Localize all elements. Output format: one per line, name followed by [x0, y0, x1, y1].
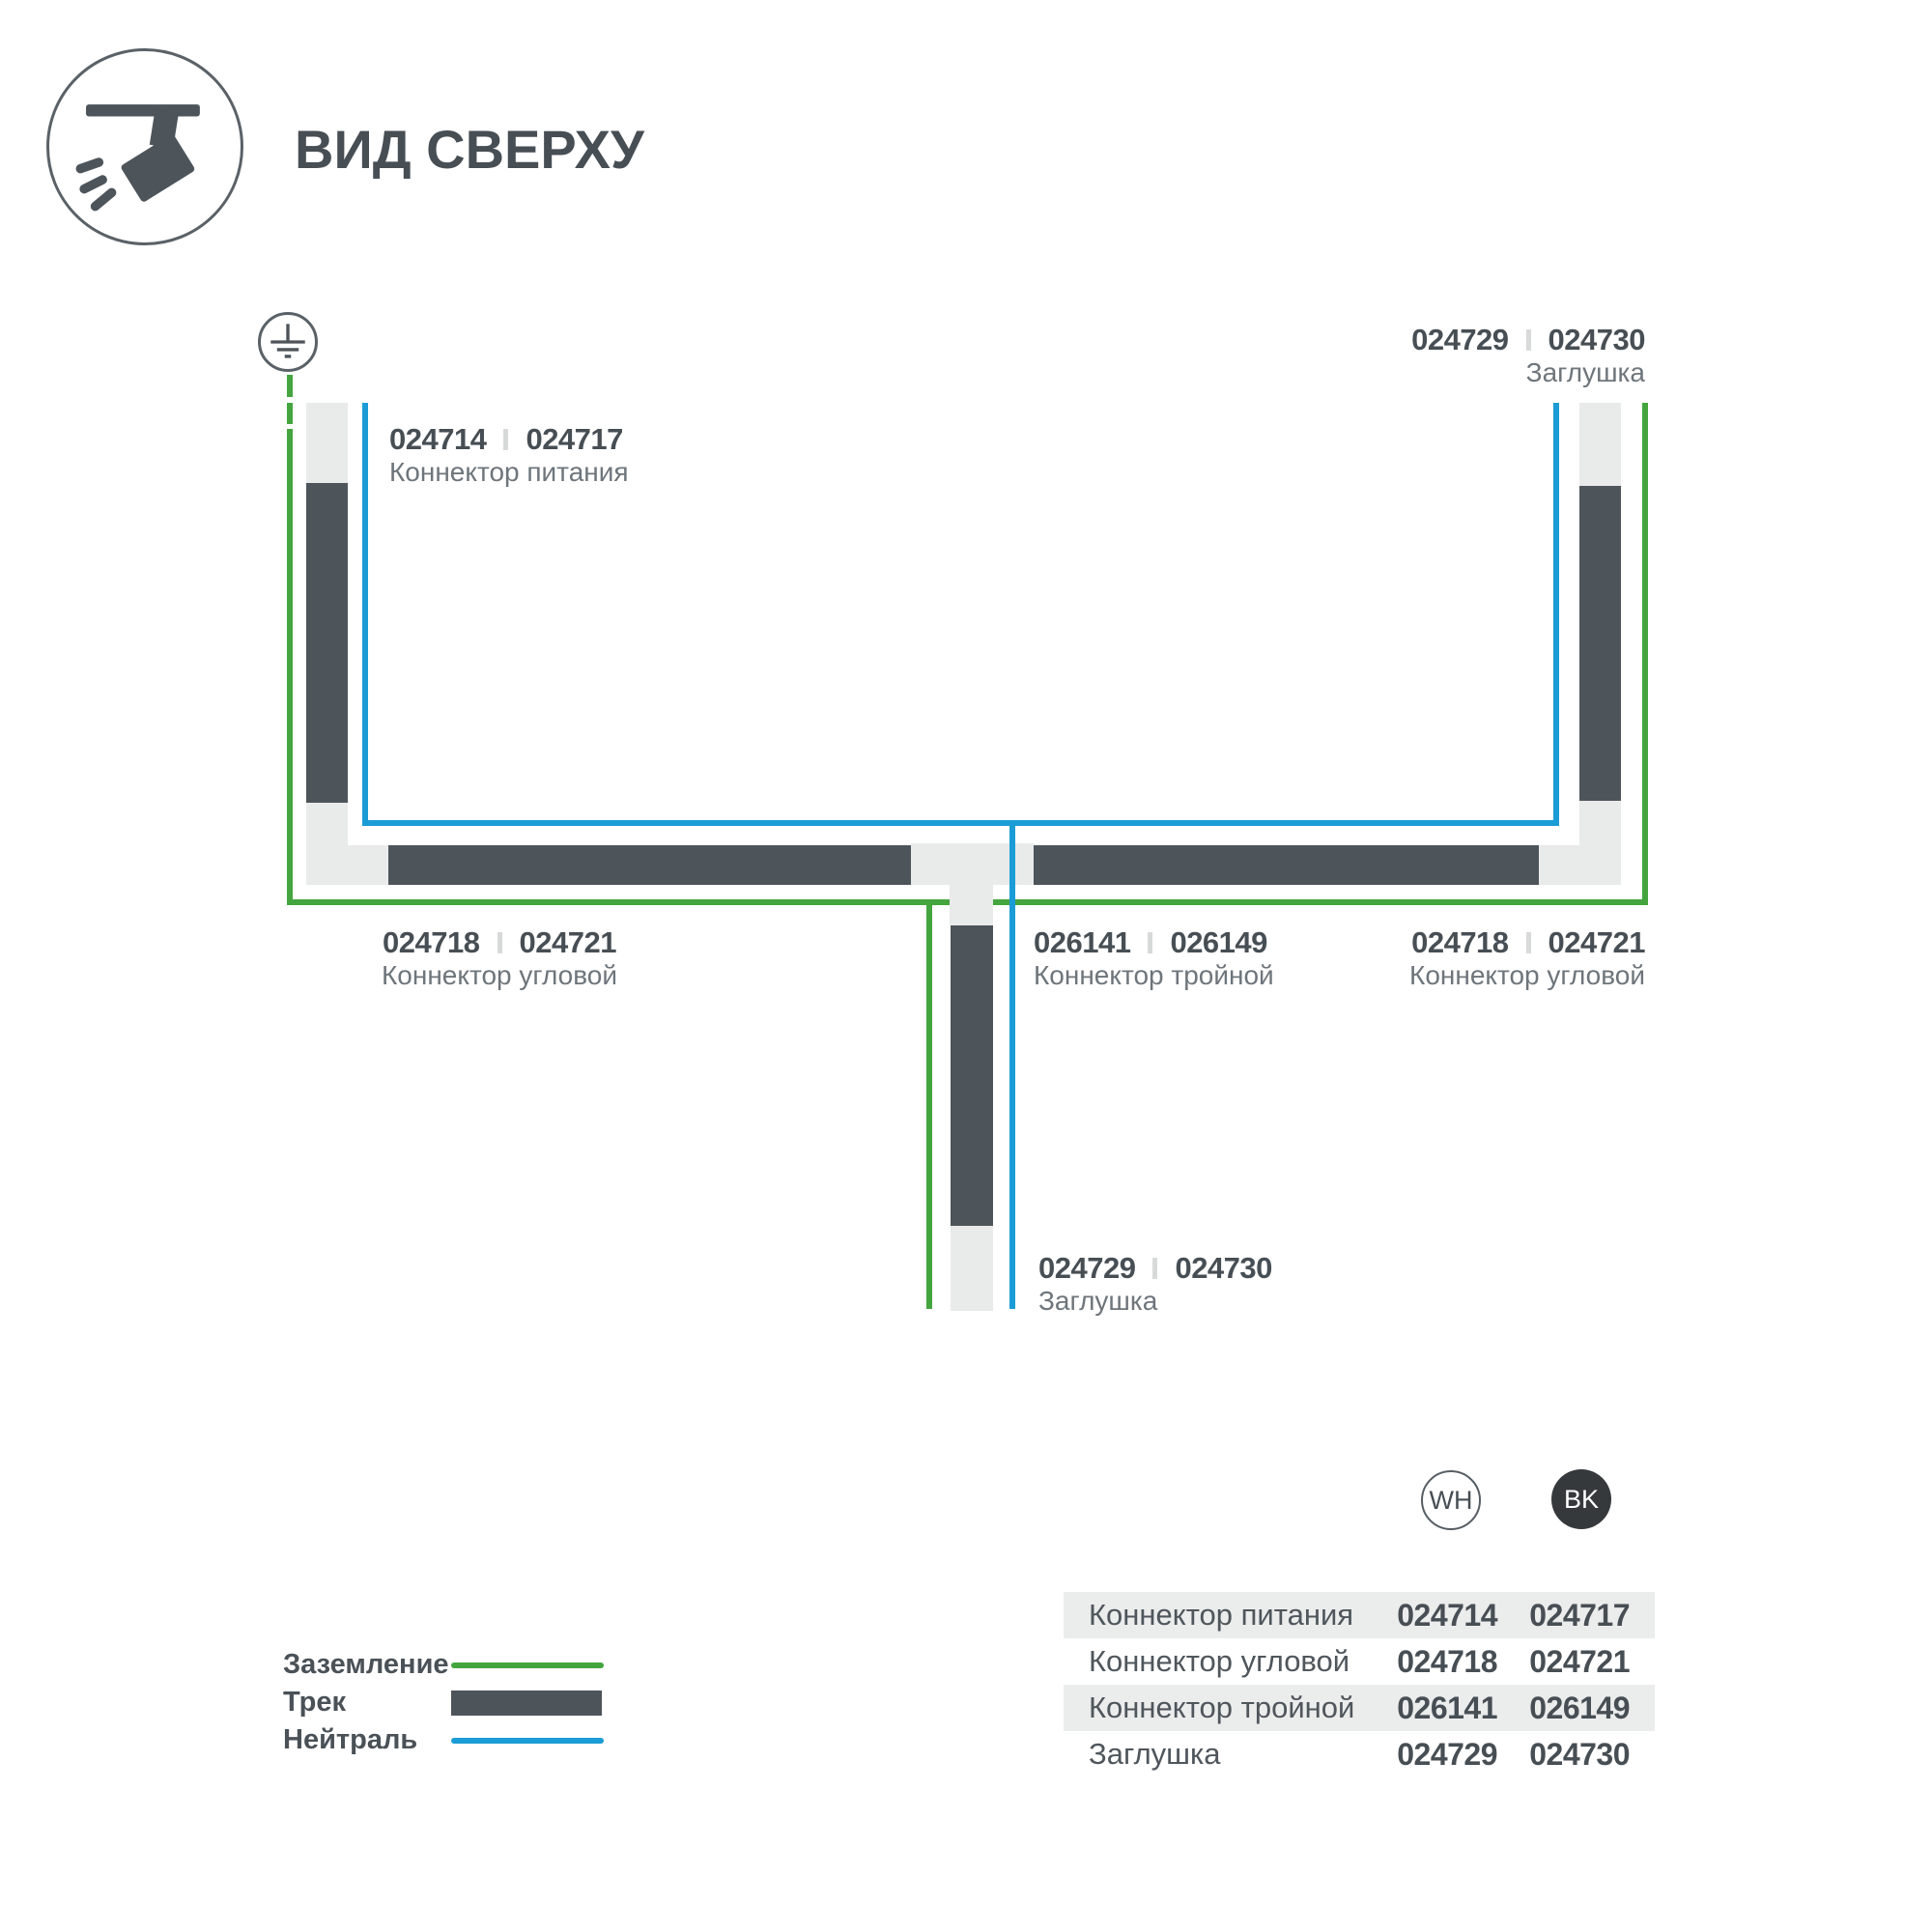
label-name: Коннектор тройной — [1034, 959, 1274, 991]
spotlight-icon — [49, 51, 235, 237]
label-codes: 024714 024717 — [389, 423, 629, 456]
part-code-bk: 024721 — [1497, 1644, 1630, 1680]
label-name: Заглушка — [1411, 356, 1645, 388]
part-code-wh: 024729 — [1357, 1737, 1497, 1773]
label-name: Заглушка — [1038, 1285, 1272, 1317]
track-left-vertical — [306, 483, 348, 803]
track-swatch — [451, 1690, 602, 1716]
part-name: Коннектор питания — [1089, 1598, 1357, 1633]
label-codes: 024729 024730 — [1038, 1252, 1272, 1285]
ground-line-bottom-right — [993, 899, 1647, 905]
code-divider — [1526, 932, 1531, 953]
label-power-connector: 024714 024717 Коннектор питания — [389, 423, 629, 488]
code-wh: 026141 — [1034, 925, 1130, 960]
code-bk: 024730 — [1175, 1251, 1271, 1286]
part-code-bk: 024717 — [1497, 1598, 1630, 1634]
label-end-cap-bottom: 024729 024730 Заглушка — [1038, 1252, 1272, 1317]
variant-badge-white: WH — [1421, 1470, 1481, 1530]
label-codes: 024718 024721 — [379, 926, 620, 959]
part-name: Заглушка — [1089, 1737, 1357, 1772]
part-code-bk: 024730 — [1497, 1737, 1630, 1773]
part-code-wh: 026141 — [1357, 1690, 1497, 1726]
part-code-wh: 024714 — [1357, 1598, 1497, 1634]
label-corner-connector-right: 024718 024721 Коннектор угловой — [1409, 926, 1645, 991]
ground-line-swatch — [451, 1662, 604, 1668]
end-cap-left-top — [306, 403, 348, 483]
label-codes: 026141 026149 — [1034, 926, 1274, 959]
neutral-line-swatch — [451, 1738, 604, 1744]
label-triple-connector: 026141 026149 Коннектор тройной — [1034, 926, 1274, 991]
legend: Заземление Трек Нейтраль — [283, 1646, 604, 1759]
ground-symbol — [258, 312, 318, 372]
legend-label-track: Трек — [283, 1687, 451, 1719]
track-bottom-vertical — [951, 925, 993, 1226]
triple-connector-stem — [950, 885, 993, 925]
track-horizontal-right — [1034, 845, 1539, 885]
code-divider — [1526, 329, 1531, 351]
part-code-bk: 026149 — [1497, 1690, 1630, 1726]
legend-row-neutral: Нейтраль — [283, 1721, 604, 1759]
legend-label-ground: Заземление — [283, 1649, 451, 1681]
ground-line-dash-1 — [287, 375, 293, 397]
table-row: Коннектор тройной 026141 026149 — [1064, 1685, 1655, 1731]
legend-label-neutral: Нейтраль — [283, 1724, 451, 1756]
page-title: ВИД СВЕРХУ — [295, 118, 644, 181]
table-row: Заглушка 024729 024730 — [1064, 1731, 1655, 1777]
neutral-line-left-vertical — [362, 403, 368, 826]
part-name: Коннектор угловой — [1089, 1644, 1357, 1679]
label-codes: 024718 024721 — [1409, 926, 1645, 959]
label-codes: 024729 024730 — [1411, 324, 1645, 356]
code-wh: 024718 — [383, 925, 479, 960]
table-row: Коннектор питания 024714 024717 — [1064, 1592, 1655, 1638]
end-cap-bottom — [951, 1226, 993, 1311]
code-bk: 024721 — [520, 925, 616, 960]
neutral-line-branch-vertical — [1009, 820, 1015, 1309]
ground-line-right-vertical — [1642, 403, 1648, 905]
ground-symbol-icon — [261, 315, 315, 369]
code-divider — [503, 429, 508, 450]
neutral-line-horizontal — [362, 820, 1559, 826]
label-name: Коннектор угловой — [1409, 959, 1645, 991]
code-divider — [1148, 932, 1152, 953]
label-end-cap-top: 024729 024730 Заглушка — [1411, 324, 1645, 388]
code-wh: 024729 — [1411, 323, 1508, 357]
code-wh: 024718 — [1411, 925, 1508, 960]
part-name: Коннектор тройной — [1089, 1690, 1357, 1725]
track-right-vertical — [1579, 486, 1621, 801]
corner-connector-right-horizontal — [1539, 845, 1621, 885]
code-wh: 024729 — [1038, 1251, 1135, 1286]
legend-row-ground: Заземление — [283, 1646, 604, 1684]
variant-badge-black: BK — [1551, 1469, 1611, 1529]
spotlight-icon-circle — [46, 48, 243, 245]
parts-table: Коннектор питания 024714 024717 Коннекто… — [1064, 1592, 1655, 1777]
ground-line-branch-vertical — [926, 904, 932, 1309]
label-corner-connector-left: 024718 024721 Коннектор угловой — [379, 926, 620, 991]
ground-line-left-vertical — [287, 429, 293, 904]
code-bk: 024721 — [1548, 925, 1645, 960]
code-bk: 026149 — [1170, 925, 1266, 960]
code-divider — [1152, 1258, 1157, 1279]
neutral-line-right-vertical — [1553, 403, 1559, 826]
part-code-wh: 024718 — [1357, 1644, 1497, 1680]
ground-line-bottom-left — [287, 899, 950, 905]
end-cap-right-top — [1579, 403, 1621, 486]
code-wh: 024714 — [389, 422, 486, 457]
legend-row-track: Трек — [283, 1684, 604, 1721]
track-horizontal-left — [388, 845, 911, 885]
table-row: Коннектор угловой 024718 024721 — [1064, 1638, 1655, 1685]
label-name: Коннектор питания — [389, 456, 629, 488]
code-bk: 024717 — [526, 422, 622, 457]
ground-line-dash-2 — [287, 403, 293, 424]
page: ВИД СВЕРХУ 024714 — [0, 0, 1932, 1932]
label-name: Коннектор угловой — [379, 959, 620, 991]
code-bk: 024730 — [1548, 323, 1645, 357]
code-divider — [497, 932, 502, 953]
corner-connector-left-horizontal — [306, 845, 388, 885]
